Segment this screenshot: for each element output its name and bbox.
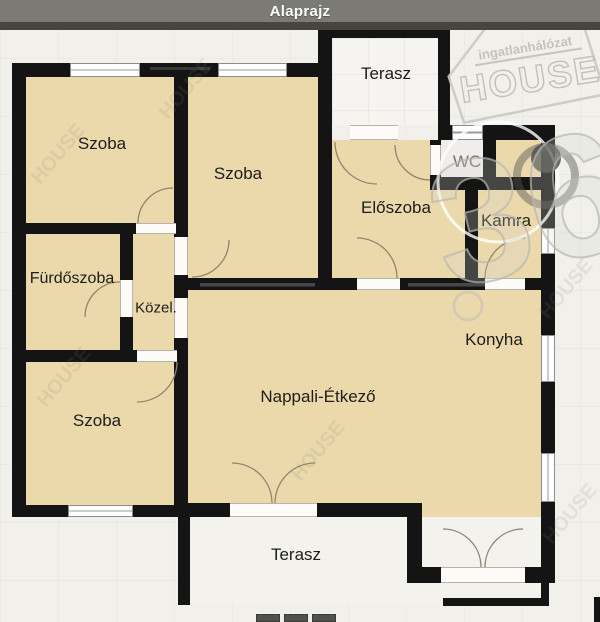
title-bar: Alaprajz <box>0 0 600 22</box>
window <box>452 125 483 140</box>
door-opening <box>485 278 525 290</box>
room-label-furdoszoba: Fürdőszoba <box>30 270 115 288</box>
wall <box>483 140 496 190</box>
floorplan-page: Alaprajz <box>0 0 600 622</box>
door-opening <box>136 223 176 234</box>
window <box>541 335 555 382</box>
wall <box>178 505 190 605</box>
room-label-wc: WC <box>453 152 481 172</box>
door-opening <box>357 278 400 290</box>
room-fill <box>332 140 541 517</box>
room-label-szoba-bottom-left: Szoba <box>73 411 121 431</box>
door-opening <box>430 145 441 175</box>
door-opening <box>350 125 398 140</box>
wall <box>12 63 26 517</box>
french-door-opening <box>230 503 317 517</box>
room-label-terasz-top: Terasz <box>361 64 411 84</box>
wall <box>443 598 549 606</box>
window <box>218 63 287 77</box>
wall <box>174 76 188 517</box>
room-label-kamra: Kamra <box>481 211 531 231</box>
wall <box>594 597 600 622</box>
wall <box>318 28 332 290</box>
floorplan-canvas: Szoba Szoba Terasz Előszoba WC Kamra Für… <box>0 0 600 622</box>
door-opening <box>137 350 177 362</box>
window <box>541 228 555 254</box>
room-label-szoba-top-left: Szoba <box>78 134 126 154</box>
wall <box>465 190 478 290</box>
door-opening <box>120 280 133 317</box>
watermark-brand-line: ingatlanhálózat <box>477 33 573 63</box>
room-label-terasz-bottom: Terasz <box>271 545 321 565</box>
window <box>541 453 555 502</box>
room-label-nappali-etkezo: Nappali-Étkező <box>260 387 375 407</box>
room-label-eloszoba: Előszoba <box>361 198 431 218</box>
terrace-bottom-floor <box>190 517 541 603</box>
window <box>70 63 140 77</box>
room-label-szoba-top-mid: Szoba <box>214 164 262 184</box>
page-title: Alaprajz <box>270 3 331 20</box>
window <box>68 505 133 517</box>
terrace-step <box>284 614 308 622</box>
watermark-brand-name: HOUSE <box>457 48 600 111</box>
room-label-konyha: Konyha <box>465 330 523 350</box>
door-opening <box>174 237 188 275</box>
title-bar-shadow <box>0 22 600 30</box>
terrace-step <box>256 614 280 622</box>
wall <box>438 28 450 128</box>
terrace-step <box>312 614 336 622</box>
french-door-opening <box>441 567 525 583</box>
room-label-kozlekedo: Közel. <box>135 300 177 317</box>
